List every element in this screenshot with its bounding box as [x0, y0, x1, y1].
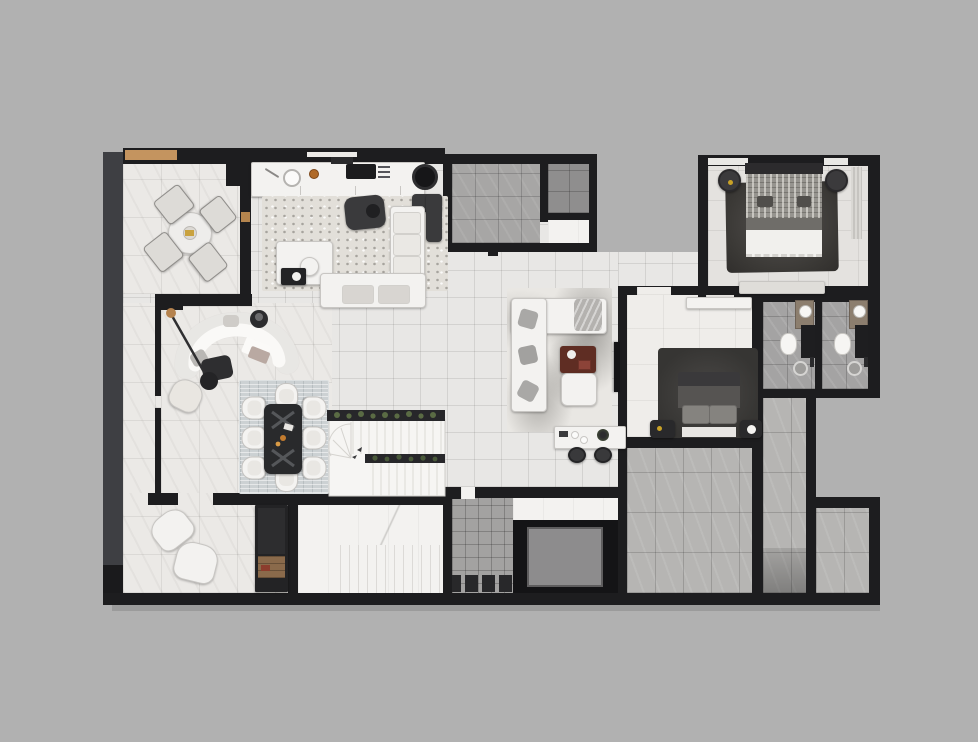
- dark-hook-chair-arm: [426, 194, 442, 242]
- bed1-headboard: [745, 163, 823, 174]
- step-box: [482, 575, 495, 592]
- wall-bathroom-divider: [815, 291, 822, 391]
- bar-stool: [594, 447, 612, 463]
- wall-bedroom2-bottom: [618, 437, 761, 448]
- sofa-cushion: [393, 234, 421, 256]
- stairs-lower-treads: [340, 545, 443, 593]
- desk-tray: [559, 431, 568, 437]
- kitchen-counter: [251, 162, 425, 197]
- wood-threshold: [125, 150, 177, 160]
- family-ottoman: [561, 373, 597, 406]
- wall-bedroom2-right-long: [752, 286, 763, 596]
- floor-room-b2-shadow: [763, 548, 806, 593]
- wall-bedroom1-right: [868, 155, 880, 303]
- bar-stool: [568, 447, 586, 463]
- cabinet-inner-panel: [258, 508, 285, 554]
- desk-plant: [597, 429, 609, 441]
- door-gap-bedroom2: [637, 287, 671, 295]
- table-plate: [283, 423, 293, 431]
- arc-lamp-head: [200, 372, 218, 390]
- window-sill: [824, 158, 848, 165]
- wall-bottom-main: [103, 593, 880, 605]
- bath1-partition: [801, 325, 815, 358]
- bath1-fixture: [810, 357, 814, 367]
- desk-cup: [571, 431, 579, 439]
- wall-utility-right: [589, 154, 597, 252]
- cooktop: [346, 164, 376, 179]
- bed2-pillow: [709, 405, 737, 424]
- wall-utility-top: [443, 154, 597, 164]
- dining-chair: [242, 397, 266, 420]
- bedroom1-pouf: [825, 169, 848, 192]
- bedroom2-nightstand: [650, 420, 675, 438]
- step-box: [499, 575, 512, 592]
- nightstand-lamp: [747, 425, 756, 434]
- floor-utility-large: [452, 163, 540, 243]
- wall-bathrooms-right: [868, 290, 880, 398]
- wood-door-jamb: [241, 212, 250, 222]
- sofa-pillow: [223, 315, 239, 327]
- dining-table-legs: [264, 404, 302, 474]
- sofa-seat: [342, 285, 374, 304]
- staircase-upper: [325, 410, 447, 498]
- floor-room-b1-large: [627, 448, 752, 593]
- stairs-lower-diagonal: [298, 505, 443, 545]
- wall-mid-a: [148, 493, 178, 505]
- wall-utility-divider-v: [540, 154, 548, 222]
- terrace-tray: [185, 230, 194, 236]
- appliance-dial: [292, 272, 301, 281]
- dark-chair-cushion: [366, 204, 380, 218]
- sofa-star-pillow: [517, 344, 538, 365]
- sofa-cushion: [393, 212, 421, 234]
- counter-joint: [300, 186, 301, 195]
- cooktop-knobs: [378, 166, 390, 178]
- floor-landing: [461, 487, 475, 499]
- floor-plan-render: [0, 0, 978, 742]
- floor-room-b3-right: [816, 508, 869, 593]
- dark-lounge-chair: [343, 194, 386, 231]
- elevator-platform: [527, 527, 603, 587]
- floor-utility-small: [548, 163, 589, 213]
- bath2-basin: [853, 305, 866, 318]
- wall-room-b3-right: [869, 497, 880, 601]
- kitchen-sink: [283, 169, 301, 187]
- wall-utility-bottom: [443, 243, 597, 252]
- sofa-throw-blanket: [574, 299, 602, 331]
- bed2-foot: [682, 427, 736, 437]
- table-dish: [567, 350, 576, 359]
- counter-joint: [400, 186, 401, 195]
- cabinet-red-box: [261, 565, 270, 571]
- wall-tv: [614, 342, 620, 392]
- bath1-toilet: [780, 333, 797, 355]
- wall-stairhall-side: [443, 499, 452, 595]
- dining-chair: [242, 457, 266, 480]
- bath1-basin: [799, 305, 812, 318]
- bath2-shower-drain: [847, 361, 862, 376]
- floor-elevator-landing: [513, 498, 618, 520]
- black-vessel: [412, 164, 438, 190]
- sofa-seat: [378, 285, 410, 304]
- wall-stub-corridor: [488, 251, 498, 256]
- step-box: [465, 575, 478, 592]
- candle: [276, 442, 281, 447]
- bed1-folded-item: [757, 196, 773, 207]
- bed2-pillow: [682, 405, 710, 424]
- dining-chair: [303, 397, 327, 420]
- gold-accent: [728, 180, 733, 185]
- bed1-folded-item: [797, 196, 811, 207]
- dining-chair: [242, 427, 266, 450]
- bath2-toilet: [834, 333, 851, 355]
- wall-room-b1-left: [618, 437, 627, 595]
- wall-balcony-right: [240, 158, 251, 303]
- bed1-band: [746, 218, 822, 230]
- candle: [280, 435, 286, 441]
- window-sill: [708, 158, 748, 165]
- dining-chair: [303, 427, 327, 450]
- bath2-fixture: [864, 357, 868, 367]
- outer-wall-left-band: [103, 152, 123, 577]
- side-table-ring: [255, 313, 263, 321]
- wall-shelf: [307, 152, 357, 157]
- dining-chair: [303, 457, 327, 480]
- console-desk: [554, 426, 626, 449]
- door-gap: [155, 396, 161, 408]
- wall-cabinet-side: [288, 503, 298, 595]
- bath1-shower-drain: [793, 361, 808, 376]
- bed2-headboard: [678, 372, 740, 386]
- copper-pot: [309, 169, 319, 179]
- table-book: [578, 360, 591, 370]
- wall-mid-d: [475, 487, 627, 498]
- floor-utility-pantry: [548, 220, 589, 243]
- gold-accent: [657, 426, 662, 431]
- wall-bedroom1-left: [698, 155, 708, 302]
- bath2-partition: [855, 325, 868, 358]
- bedroom2-dresser: [686, 297, 752, 309]
- bedroom1-bench: [739, 281, 825, 294]
- desk-cup: [580, 436, 588, 444]
- counter-joint: [355, 186, 356, 195]
- arc-lamp-base: [166, 308, 176, 318]
- wall-utility-divider-h: [543, 213, 589, 220]
- bed1-blanket: [746, 230, 822, 257]
- plan-shadow: [112, 605, 880, 611]
- bedroom1-curtain: [851, 167, 862, 239]
